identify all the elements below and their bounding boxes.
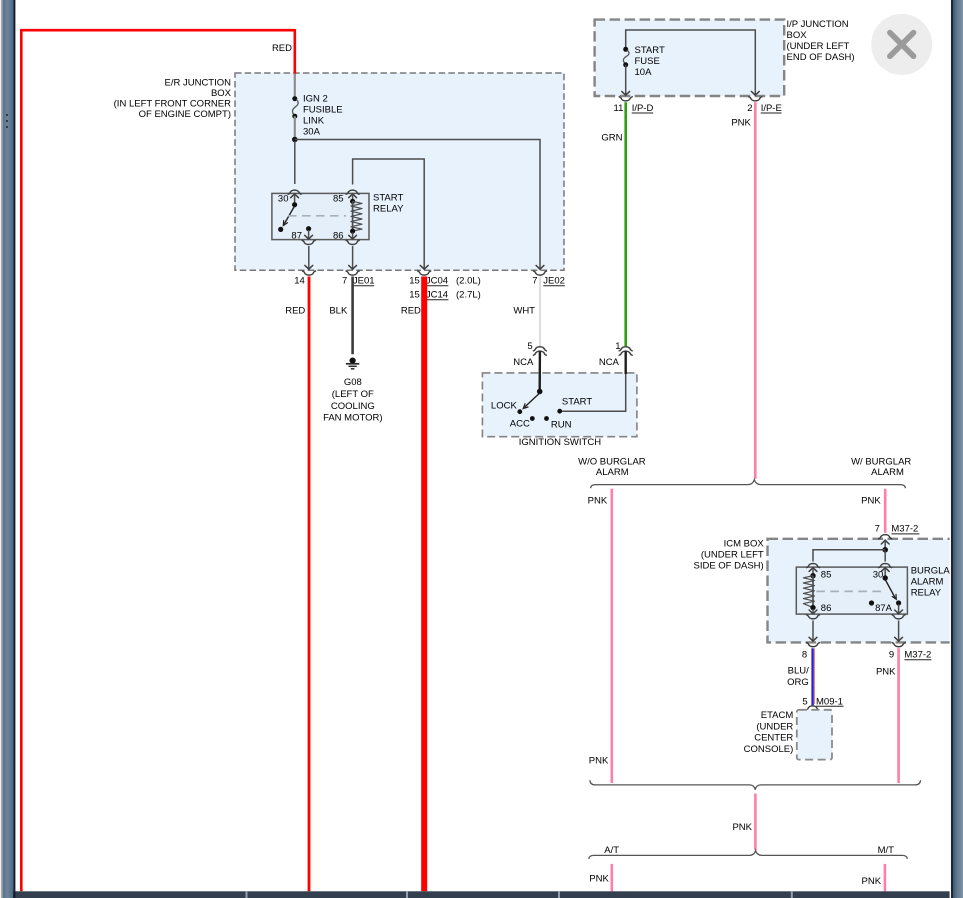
svg-text:M37-2: M37-2 <box>904 650 931 661</box>
svg-text:I/P-E: I/P-E <box>761 103 782 114</box>
svg-text:RUN: RUN <box>551 420 572 431</box>
svg-text:PNK: PNK <box>589 756 609 767</box>
svg-text:LOCK: LOCK <box>491 401 518 412</box>
svg-text:5: 5 <box>527 341 532 352</box>
svg-text:FUSIBLE: FUSIBLE <box>303 105 343 116</box>
svg-text:30: 30 <box>278 194 289 205</box>
svg-text:LINK: LINK <box>303 116 325 127</box>
svg-text:11: 11 <box>614 103 624 114</box>
svg-text:RELAY: RELAY <box>373 204 404 215</box>
svg-text:JC04: JC04 <box>426 276 448 287</box>
svg-text:(IN LEFT FRONT CORNER: (IN LEFT FRONT CORNER <box>114 99 231 110</box>
svg-text:14: 14 <box>294 276 305 287</box>
svg-text:PNK: PNK <box>732 822 752 833</box>
svg-text:M/T: M/T <box>878 845 895 856</box>
svg-text:E/R JUNCTION: E/R JUNCTION <box>165 78 232 89</box>
svg-text:START: START <box>635 45 665 56</box>
svg-text:87A: 87A <box>875 603 893 614</box>
svg-text:(LEFT OF: (LEFT OF <box>332 389 374 400</box>
svg-text:7: 7 <box>532 276 537 287</box>
svg-text:RED: RED <box>285 306 305 317</box>
svg-text:15: 15 <box>409 276 420 287</box>
svg-text:85: 85 <box>821 570 832 581</box>
svg-text:IGNITION SWITCH: IGNITION SWITCH <box>519 437 601 448</box>
svg-text:BLK: BLK <box>329 306 348 317</box>
svg-text:30: 30 <box>873 570 884 581</box>
svg-text:ALARM: ALARM <box>596 467 629 478</box>
svg-text:ORG: ORG <box>787 677 809 688</box>
svg-text:ALARM: ALARM <box>871 467 904 478</box>
svg-text:PNK: PNK <box>588 496 608 507</box>
svg-text:WHT: WHT <box>513 306 535 317</box>
svg-text:1: 1 <box>615 341 620 352</box>
svg-text:7: 7 <box>875 524 880 535</box>
svg-text:NCA: NCA <box>599 357 620 368</box>
svg-text:IGN 2: IGN 2 <box>303 94 328 105</box>
svg-text:FUSE: FUSE <box>635 56 660 67</box>
svg-text:ETACM: ETACM <box>761 710 794 721</box>
svg-text:PNK: PNK <box>731 118 751 129</box>
svg-text:86: 86 <box>821 603 832 614</box>
svg-text:A/T: A/T <box>604 845 619 856</box>
svg-text:(UNDER LEFT: (UNDER LEFT <box>701 549 764 560</box>
svg-text:CENTER: CENTER <box>754 733 793 744</box>
svg-text:W/O BURGLAR: W/O BURGLAR <box>578 457 646 468</box>
svg-text:W/ BURGLAR: W/ BURGLAR <box>851 457 911 468</box>
svg-text:10A: 10A <box>635 67 653 78</box>
svg-text:START: START <box>373 193 403 204</box>
svg-text:NCA: NCA <box>513 357 534 368</box>
svg-text:RED: RED <box>272 43 292 54</box>
svg-text:7: 7 <box>342 276 347 287</box>
svg-text:CONSOLE): CONSOLE) <box>744 744 794 755</box>
svg-text:JC14: JC14 <box>426 290 448 301</box>
svg-text:(2.7L): (2.7L) <box>456 290 481 301</box>
svg-text:PNK: PNK <box>589 874 609 885</box>
svg-text:2: 2 <box>747 103 752 114</box>
svg-text:G08: G08 <box>344 377 362 388</box>
svg-text:RELAY: RELAY <box>911 588 942 599</box>
svg-text:ICM BOX: ICM BOX <box>724 538 765 549</box>
svg-text:COOLING: COOLING <box>331 401 375 412</box>
svg-text:START: START <box>562 397 592 408</box>
svg-text:86: 86 <box>333 230 344 241</box>
svg-text:END OF DASH): END OF DASH) <box>787 52 855 63</box>
svg-text:RED: RED <box>401 306 421 317</box>
svg-text:ALARM: ALARM <box>911 577 944 588</box>
svg-text:JE02: JE02 <box>543 276 565 287</box>
svg-text:PNK: PNK <box>876 666 896 677</box>
svg-text:15: 15 <box>409 290 420 301</box>
svg-text:FAN MOTOR): FAN MOTOR) <box>323 413 382 424</box>
svg-text:8: 8 <box>802 650 807 661</box>
svg-text:JE01: JE01 <box>353 276 375 287</box>
svg-text:GRN: GRN <box>601 132 622 143</box>
svg-text:BOX: BOX <box>787 30 808 41</box>
svg-text:(2.0L): (2.0L) <box>456 276 481 287</box>
svg-text:87: 87 <box>291 230 302 241</box>
svg-text:BOX: BOX <box>211 88 232 99</box>
svg-text:5: 5 <box>802 696 807 707</box>
svg-text:85: 85 <box>333 194 344 205</box>
svg-text:PNK: PNK <box>862 876 882 887</box>
svg-text:I/P-D: I/P-D <box>632 103 654 114</box>
svg-text:(UNDER: (UNDER <box>756 721 793 732</box>
svg-text:SIDE OF DASH): SIDE OF DASH) <box>693 560 763 571</box>
svg-text:BLU/: BLU/ <box>788 666 809 677</box>
svg-text:OF ENGINE COMPT): OF ENGINE COMPT) <box>139 109 231 120</box>
svg-text:30A: 30A <box>303 127 321 138</box>
svg-text:M37-2: M37-2 <box>891 524 918 535</box>
svg-text:ACC: ACC <box>510 419 530 430</box>
svg-text:PNK: PNK <box>861 496 881 507</box>
svg-text:I/P JUNCTION: I/P JUNCTION <box>787 19 849 30</box>
svg-text:9: 9 <box>889 650 894 661</box>
svg-text:(UNDER LEFT: (UNDER LEFT <box>787 41 850 52</box>
